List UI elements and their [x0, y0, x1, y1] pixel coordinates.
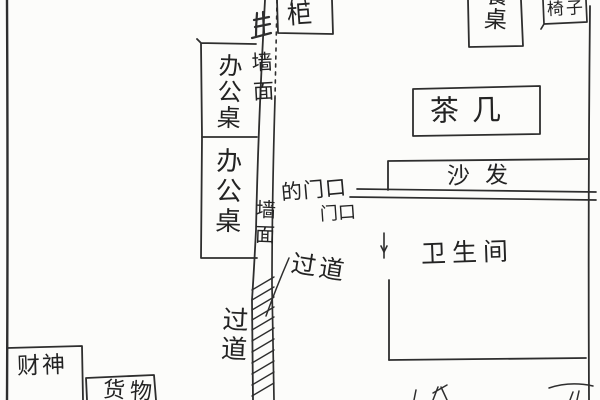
corridor-label-lower: 过道	[217, 305, 247, 364]
wealth-god-label: 财神	[17, 353, 68, 379]
desk-lower-label: 办公桌	[211, 147, 240, 237]
sofa-wall-line-upper	[357, 189, 596, 192]
door-direction-arrow	[381, 233, 387, 258]
wall-label-middle: 墙面	[252, 199, 275, 250]
chair-label: 椅子	[547, 0, 586, 20]
tea-table-label: 茶几	[430, 94, 515, 126]
bathroom-bottom-wall	[389, 358, 586, 360]
right-wall-line	[589, 6, 590, 400]
sofa-label: 沙发	[447, 163, 523, 188]
dining-table-label: 餐桌	[480, 0, 507, 32]
wall-label-top: 墙面	[249, 50, 274, 109]
wall-hatching	[252, 277, 274, 396]
door-swing-diagonal	[266, 258, 289, 316]
wall-scribble	[252, 12, 271, 38]
bathroom-label: 卫生间	[421, 238, 515, 267]
left-wall-line	[7, 0, 8, 400]
goods-label: 货物	[102, 379, 157, 400]
cabinet-label: 柜	[286, 1, 313, 29]
floor-plan-page: 墙面 墙面 柜 办公桌 办公桌 餐桌 椅子 茶几 沙发 卫生间 的门口 门口 过…	[0, 0, 600, 400]
bottom-clipped-strokes	[414, 384, 593, 400]
sofa-wall-line-lower	[350, 197, 596, 200]
desk-upper-label: 办公桌	[213, 53, 241, 132]
door-label: 门口	[319, 204, 356, 225]
door-entry-label: 的门口	[280, 176, 348, 204]
